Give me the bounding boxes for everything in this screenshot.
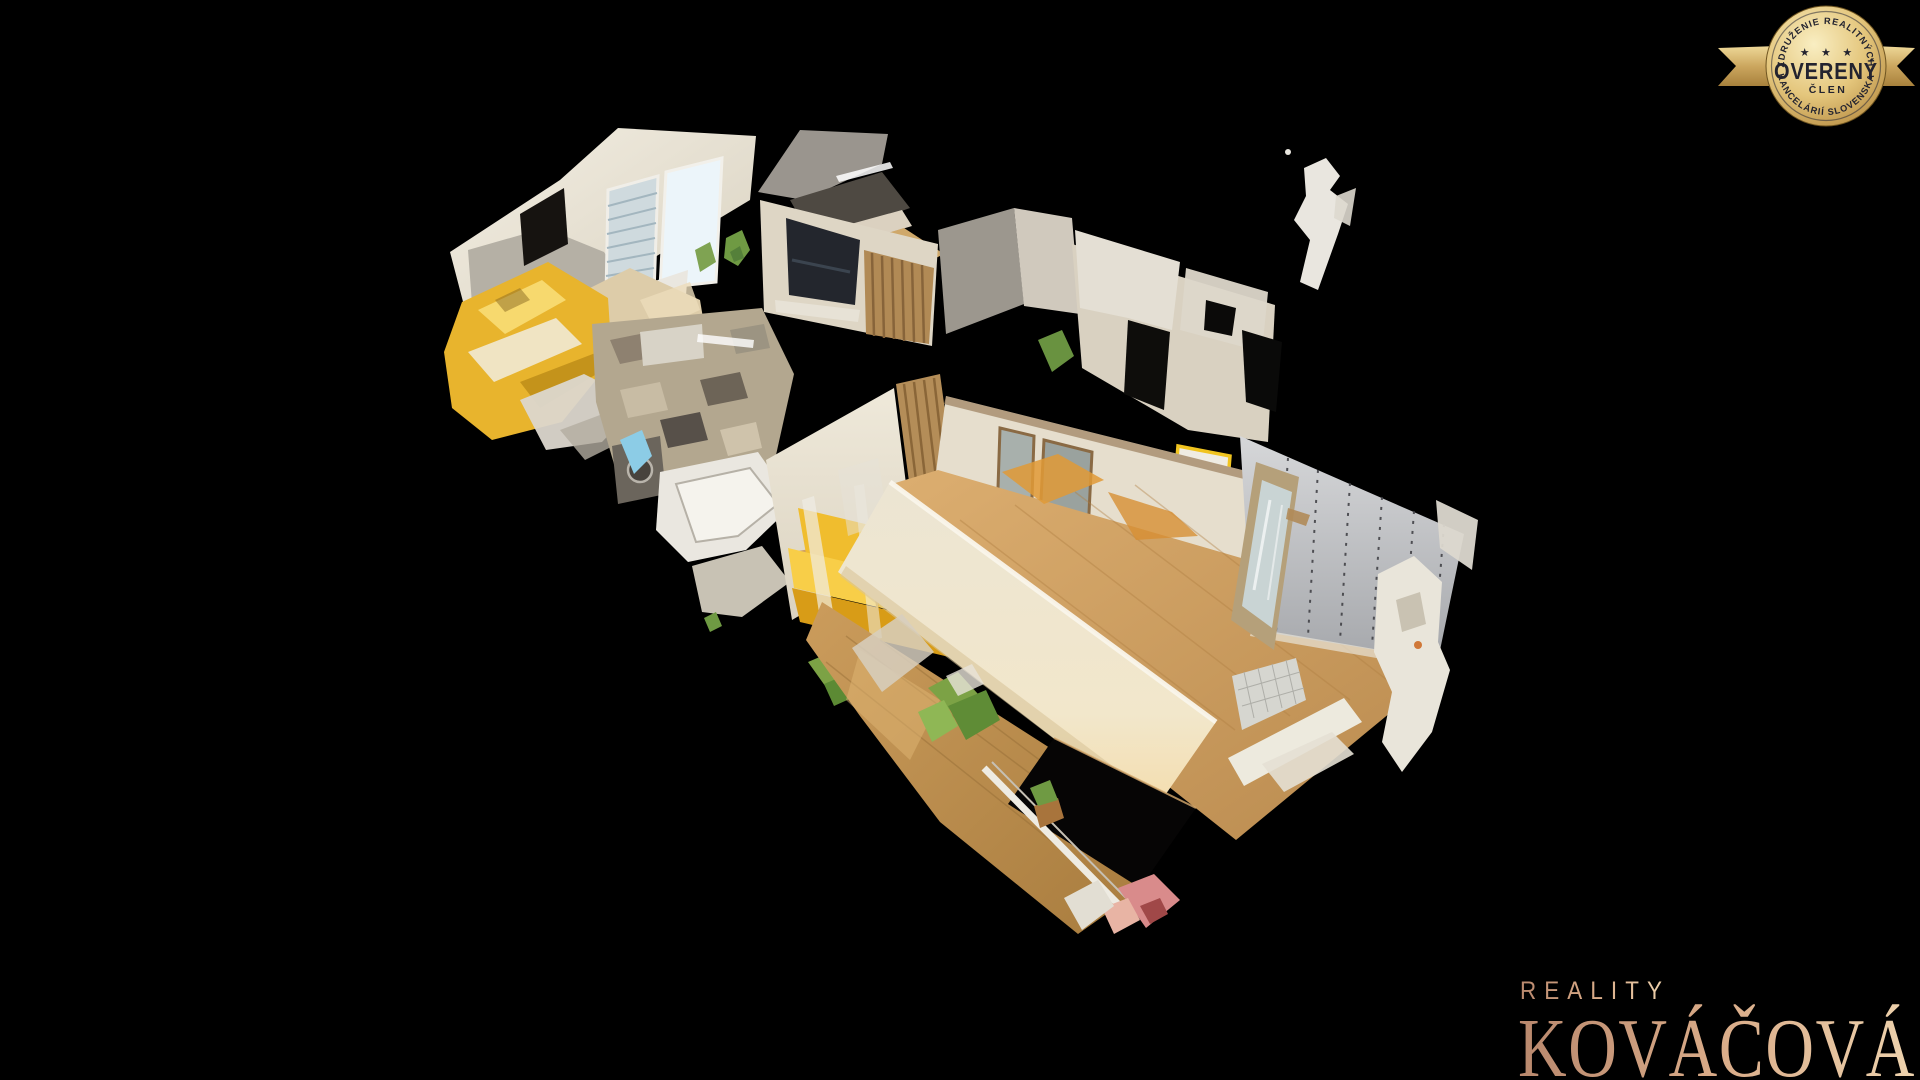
badge-seal: ZDRUŽENIE REALITNÝCH KANCELÁRIÍ SLOVENSK… [1766, 6, 1886, 126]
plant [1038, 330, 1074, 372]
badge-subtitle: ČLEN [1809, 83, 1848, 96]
video-frame: ZDRUŽENIE REALITNÝCH KANCELÁRIÍ SLOVENSK… [0, 0, 1920, 1080]
agency-logo: REALITY KOVÁČOVÁ [1498, 952, 1920, 1080]
logo-line2: KOVÁČOVÁ [1518, 1002, 1916, 1080]
floating-fragments [1285, 149, 1356, 290]
logo-line1: REALITY [1520, 977, 1670, 1005]
bathroom [592, 308, 794, 632]
dollhouse-model [0, 0, 1920, 1080]
window [660, 158, 722, 288]
verified-member-badge: ZDRUŽENIE REALITNÝCH KANCELÁRIÍ SLOVENSK… [1703, 0, 1920, 134]
badge-title: OVERENÝ [1774, 57, 1878, 84]
